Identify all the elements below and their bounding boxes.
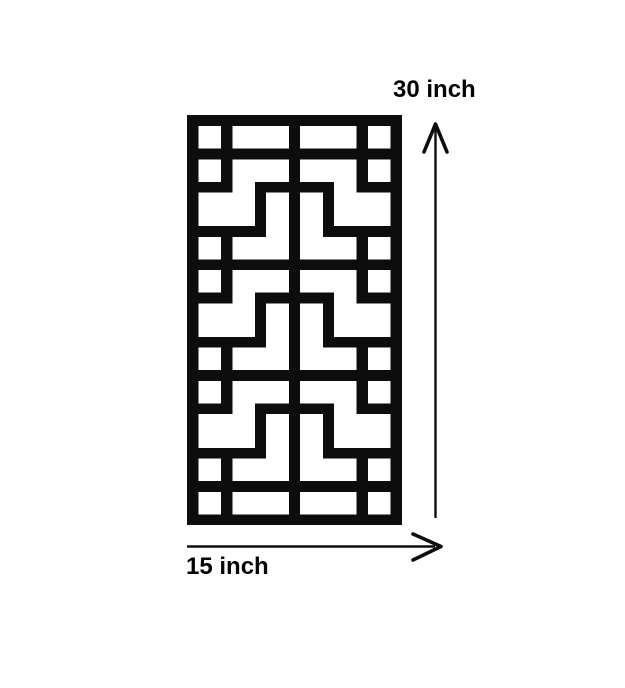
lattice-opening [334, 326, 391, 337]
lattice-opening [266, 303, 289, 314]
lattice-opening [368, 459, 391, 470]
lattice-opening [334, 314, 391, 325]
lattice-opening [232, 492, 289, 503]
lattice-opening [198, 392, 221, 403]
lattice-opening [368, 137, 391, 148]
lattice-opening [232, 159, 289, 170]
lattice-opening [300, 303, 323, 314]
lattice-opening [334, 414, 391, 425]
lattice-opening [300, 392, 357, 403]
lattice-opening [232, 237, 289, 248]
lattice-opening [198, 348, 221, 359]
lattice-opening [232, 170, 289, 181]
lattice-opening [368, 170, 391, 181]
lattice-opening [300, 337, 323, 348]
width-dimension-label: 15 inch [186, 553, 269, 581]
lattice-opening [334, 181, 357, 192]
lattice-opening [198, 314, 255, 325]
lattice-opening [266, 215, 289, 226]
lattice-opening [198, 359, 221, 370]
lattice-opening [300, 447, 323, 458]
lattice-opening [232, 137, 289, 148]
lattice-opening [368, 392, 391, 403]
lattice-opening [266, 326, 289, 337]
lattice-opening [232, 470, 289, 481]
lattice-opening [198, 159, 221, 170]
lattice-opening [300, 326, 323, 337]
lattice-opening [198, 425, 255, 436]
lattice-opening [334, 215, 391, 226]
lattice-opening [198, 414, 255, 425]
lattice-opening [368, 126, 391, 137]
lattice-opening [300, 226, 323, 237]
lattice-opening [368, 470, 391, 481]
lattice-opening [300, 470, 357, 481]
lattice-opening [300, 436, 323, 447]
lattice-opening [300, 170, 357, 181]
lattice-opening [198, 381, 221, 392]
lattice-opening [334, 403, 357, 414]
lattice-opening [198, 281, 221, 292]
lattice-opening [198, 170, 221, 181]
lattice-opening [300, 414, 323, 425]
lattice-opening [198, 459, 221, 470]
lattice-opening [300, 348, 357, 359]
lattice-opening [198, 215, 255, 226]
lattice-opening [368, 359, 391, 370]
lattice-opening [300, 492, 357, 503]
lattice-panel [187, 115, 402, 525]
lattice-opening [232, 270, 289, 281]
lattice-opening [334, 425, 391, 436]
lattice-opening [334, 193, 391, 204]
lattice-opening [368, 281, 391, 292]
lattice-opening [198, 492, 221, 503]
diagram-canvas: 30 inch 15 inch [0, 0, 625, 688]
lattice-opening [266, 337, 289, 348]
lattice-opening [368, 248, 391, 259]
lattice-opening [266, 425, 289, 436]
lattice-opening [198, 270, 221, 281]
lattice-opening [198, 470, 221, 481]
lattice-opening [266, 436, 289, 447]
lattice-opening [300, 281, 357, 292]
lattice-opening [232, 392, 289, 403]
lattice-opening [300, 381, 357, 392]
lattice-opening [198, 436, 255, 447]
lattice-opening [198, 193, 255, 204]
height-dimension-arrow [420, 118, 450, 523]
lattice-opening [334, 436, 391, 447]
lattice-opening [334, 204, 391, 215]
lattice-opening [232, 181, 255, 192]
lattice-opening [300, 425, 323, 436]
lattice-opening [198, 204, 255, 215]
lattice-opening [300, 193, 323, 204]
height-dimension-label: 30 inch [393, 76, 476, 104]
lattice-opening [232, 281, 289, 292]
lattice-opening [232, 381, 289, 392]
lattice-opening [300, 503, 357, 514]
lattice-opening [198, 126, 221, 137]
lattice-opening [266, 314, 289, 325]
lattice-opening [232, 459, 289, 470]
lattice-opening [300, 215, 323, 226]
lattice-opening [368, 270, 391, 281]
lattice-opening [266, 414, 289, 425]
lattice-opening [300, 237, 357, 248]
lattice-opening [368, 159, 391, 170]
lattice-opening [198, 303, 255, 314]
lattice-opening [300, 204, 323, 215]
lattice-opening [334, 303, 391, 314]
lattice-opening [266, 204, 289, 215]
lattice-opening [232, 126, 289, 137]
lattice-opening [368, 237, 391, 248]
lattice-opening [266, 226, 289, 237]
lattice-opening [368, 348, 391, 359]
lattice-opening [368, 492, 391, 503]
lattice-opening [232, 503, 289, 514]
lattice-opening [232, 292, 255, 303]
lattice-opening [232, 248, 289, 259]
lattice-opening [232, 359, 289, 370]
lattice-opening [266, 193, 289, 204]
lattice-opening [300, 270, 357, 281]
lattice-opening [368, 503, 391, 514]
lattice-opening [300, 459, 357, 470]
lattice-opening [232, 348, 289, 359]
lattice-opening [266, 447, 289, 458]
lattice-opening [300, 159, 357, 170]
lattice-opening [300, 126, 357, 137]
lattice-opening [300, 248, 357, 259]
lattice-opening [198, 137, 221, 148]
lattice-opening [232, 403, 255, 414]
lattice-opening [198, 248, 221, 259]
lattice-opening [300, 314, 323, 325]
lattice-opening [198, 503, 221, 514]
lattice-opening [300, 137, 357, 148]
lattice-opening [198, 237, 221, 248]
lattice-opening [334, 292, 357, 303]
lattice-opening [300, 359, 357, 370]
lattice-opening [368, 381, 391, 392]
lattice-opening [198, 326, 255, 337]
